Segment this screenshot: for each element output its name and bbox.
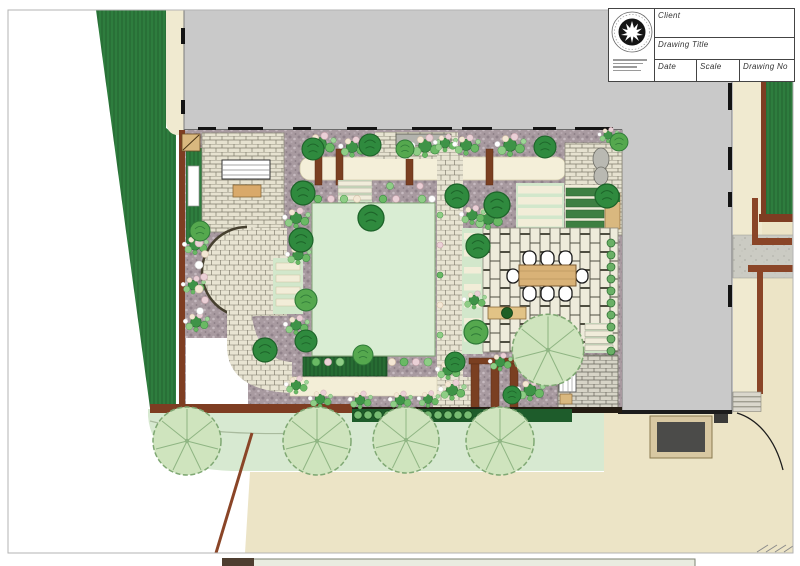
coffee-table: [233, 185, 261, 197]
studio-address-lines: [613, 57, 651, 73]
scale-field: Scale: [697, 60, 740, 81]
drawing-no-label: Drawing No: [743, 62, 788, 71]
client-label: Client: [658, 11, 680, 20]
bistro-table: [593, 148, 609, 185]
drawing-no-field: Drawing No: [740, 60, 794, 81]
title-block-logo-cell: [609, 9, 655, 81]
entrance-mat: [650, 416, 712, 458]
meter-box: [714, 414, 728, 423]
planted-pot: [502, 308, 513, 319]
left-garden-fence: [179, 130, 185, 410]
designer-stamp-logo-icon: [610, 9, 654, 55]
title-block: Client Drawing Title Date Scale Drawing …: [608, 8, 795, 82]
side-gate: [182, 134, 200, 151]
patio-bench: [488, 307, 526, 319]
client-field: Client: [655, 9, 794, 38]
date-field: Date: [655, 60, 697, 81]
drawing-title-label: Drawing Title: [658, 40, 709, 49]
drawing-canvas: Client Drawing Title Date Scale Drawing …: [0, 0, 800, 566]
scale-bar-clipped: [230, 559, 695, 566]
drawing-title-field: Drawing Title: [655, 38, 794, 60]
scale-label: Scale: [700, 62, 722, 71]
stepping-pads-upper: [516, 183, 564, 228]
garden-plan-drawing: [0, 0, 800, 566]
side-storage-unit: [188, 166, 199, 206]
right-hedge-end-wall: [759, 214, 793, 222]
left-boundary-hedge-texture: [96, 10, 176, 408]
brick-seating-area: [202, 133, 284, 232]
pad-side-table: [560, 394, 572, 404]
date-label: Date: [658, 62, 676, 71]
garden-bench: [222, 160, 270, 179]
dining-table: [519, 265, 576, 286]
scale-bar-end-block: [222, 558, 254, 566]
side-steps: [733, 392, 761, 412]
garage-wing-bottom-wall: [618, 410, 732, 414]
